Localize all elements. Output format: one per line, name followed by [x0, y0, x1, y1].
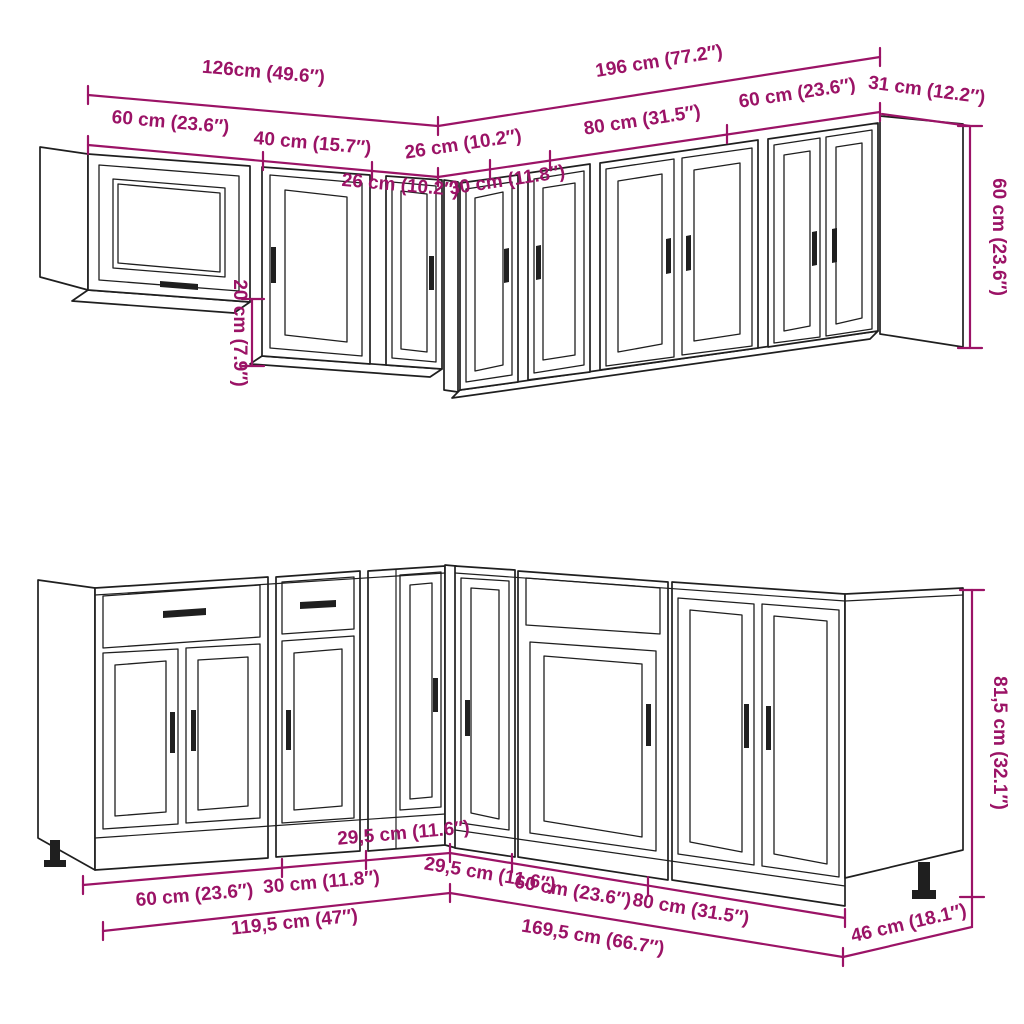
base-right-leg [912, 862, 936, 899]
dim-label-wall-60-left: 60 cm (23.6″) [111, 107, 230, 138]
base-cab-60-sink-front [518, 571, 668, 880]
wall-cab-26-right-front [460, 175, 518, 390]
base-left-side-panel [38, 580, 95, 870]
dim-label-wall-drop: 20 cm (7.9″) [229, 279, 250, 386]
dim-label-wall-60-right: 60 cm (23.6″) [737, 74, 857, 112]
wall-corner-post [444, 180, 458, 392]
dim-label-wall-height: 60 cm (23.6″) [988, 178, 1009, 296]
wall-cab-26-left-handle [429, 256, 434, 290]
base-cab-60-sink-handle [646, 704, 651, 746]
base-cab-295-right-front [455, 566, 515, 857]
kitchen-cabinet-dimension-diagram: 126cm (49.6″) 196 cm (77.2″) 60 cm (23.6… [0, 0, 1024, 1024]
dim-label-base-total-right: 169,5 cm (66.7″) [520, 916, 666, 960]
wall-cab-26-right-handle [504, 248, 509, 283]
dim-label-base-80: 80 cm (31.5″) [631, 890, 751, 930]
wall-cab-40-handle [271, 247, 276, 283]
wall-cabinets-drawing [40, 116, 963, 398]
dim-label-base-depth: 46 cm (18.1″) [849, 900, 969, 947]
dim-label-wall-80: 80 cm (31.5″) [582, 101, 702, 139]
dim-label-base-30: 30 cm (11.8″) [262, 867, 380, 898]
base-cabinets-drawing [38, 565, 963, 906]
wall-right-side-panel [880, 116, 963, 347]
base-cab-60-front [95, 577, 268, 870]
base-right-side-panel [845, 588, 963, 878]
dim-label-wall-total-left: 126cm (49.6″) [201, 57, 326, 89]
dim-label-wall-26-right: 26 cm (10.2″) [403, 125, 523, 163]
wall-cab-60-flipup-front [88, 154, 250, 302]
diagram-canvas: 126cm (49.6″) 196 cm (77.2″) 60 cm (23.6… [0, 0, 1024, 1024]
wall-cab-40-front [262, 167, 370, 364]
wall-cab-60-flipup-side-panel [40, 147, 88, 290]
dim-label-wall-40: 40 cm (15.7″) [253, 128, 372, 159]
dim-label-wall-depth: 31 cm (12.2″) [867, 72, 987, 108]
base-cab-295-right-handle [465, 700, 470, 736]
dim-label-base-60-left: 60 cm (23.6″) [135, 880, 254, 911]
base-cab-30-door-handle [286, 710, 291, 750]
dim-label-base-height: 81,5 cm (32.1″) [989, 676, 1010, 810]
base-cab-295-left-handle [433, 678, 438, 712]
dim-label-wall-total-right: 196 cm (77.2″) [594, 41, 724, 82]
wall-cab-30-handle [536, 245, 541, 280]
